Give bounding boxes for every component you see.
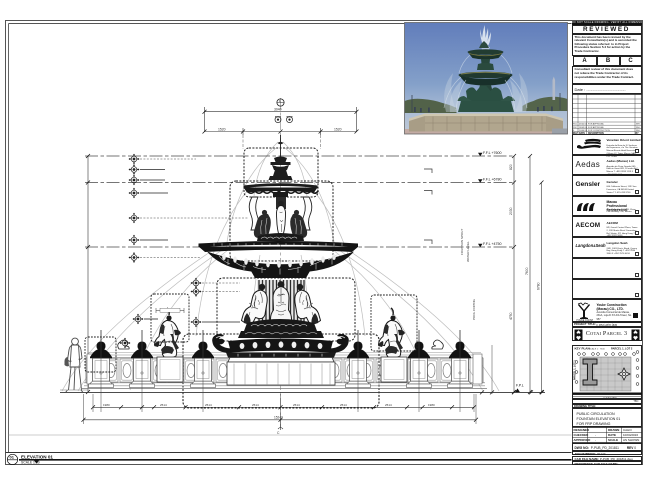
svg-text:PARCEL 1, LOT 1: PARCEL 1, LOT 1 bbox=[573, 360, 576, 380]
svg-text:1980: 1980 bbox=[103, 403, 110, 407]
svg-text:10/04/16: 10/04/16 bbox=[579, 130, 588, 132]
svg-text:WH: WH bbox=[636, 130, 640, 132]
svg-text:FOR APPROVAL: FOR APPROVAL bbox=[588, 122, 605, 125]
svg-text:DRAWN: DRAWN bbox=[608, 428, 619, 432]
svg-text:2514: 2514 bbox=[385, 403, 392, 407]
svg-text:ELEVATION 01: ELEVATION 01 bbox=[21, 454, 53, 459]
svg-text:KEY PLAN: KEY PLAN bbox=[574, 347, 589, 351]
svg-text:-: - bbox=[595, 433, 596, 437]
svg-text:-: - bbox=[595, 438, 596, 442]
svg-text:WATER LEVEL: WATER LEVEL bbox=[466, 241, 470, 262]
svg-text:FOUNTAIN SPOUT: FOUNTAIN SPOUT bbox=[460, 229, 464, 255]
svg-text:2030: 2030 bbox=[509, 207, 513, 215]
svg-text:F.F.L +7600: F.F.L +7600 bbox=[483, 151, 502, 155]
svg-text:2514: 2514 bbox=[252, 403, 259, 407]
svg-text:SCALE: SCALE bbox=[608, 438, 618, 442]
svg-text:APPROVED: APPROVED bbox=[573, 438, 591, 442]
svg-text:18/03/16: 18/03/16 bbox=[579, 126, 588, 128]
svg-text:C: C bbox=[277, 431, 280, 435]
svg-text:7600: 7600 bbox=[525, 267, 529, 275]
svg-text:1520: 1520 bbox=[334, 127, 342, 131]
svg-text:05/02/16: 05/02/16 bbox=[579, 123, 588, 125]
svg-text:DATE: DATE bbox=[608, 433, 616, 437]
svg-text:6780: 6780 bbox=[537, 282, 541, 290]
svg-text:10/04/2016: 10/04/2016 bbox=[623, 433, 638, 437]
svg-text:DESIGNED: DESIGNED bbox=[573, 428, 590, 432]
svg-text:WH: WH bbox=[636, 123, 640, 125]
svg-text:2514: 2514 bbox=[293, 403, 300, 407]
svg-text:CAHO: CAHO bbox=[623, 428, 632, 432]
svg-text:FOR APPROVAL: FOR APPROVAL bbox=[588, 125, 605, 128]
svg-text:2514: 2514 bbox=[205, 403, 212, 407]
svg-text:F.F.L +6780: F.F.L +6780 bbox=[483, 178, 502, 182]
svg-text:1980: 1980 bbox=[428, 403, 435, 407]
svg-text:YOUKE CONSTRUCTION: YOUKE CONSTRUCTION bbox=[576, 319, 593, 321]
svg-text:2514: 2514 bbox=[160, 403, 167, 407]
svg-text:4750: 4750 bbox=[509, 312, 513, 320]
svg-text:2514: 2514 bbox=[340, 403, 347, 407]
svg-text:F.P.L: F.P.L bbox=[516, 384, 524, 388]
svg-text:15240: 15240 bbox=[274, 416, 283, 420]
svg-text:3040: 3040 bbox=[274, 108, 282, 112]
svg-text:CHECKED: CHECKED bbox=[573, 433, 589, 437]
svg-text:POOL COPING: POOL COPING bbox=[472, 298, 476, 320]
svg-text:SCALE 1 : 7500: SCALE 1 : 7500 bbox=[589, 348, 605, 351]
svg-text:1520: 1520 bbox=[218, 127, 226, 131]
svg-text:AS SHOWN: AS SHOWN bbox=[623, 438, 639, 442]
svg-text:FOR CONSTRUCTION: FOR CONSTRUCTION bbox=[588, 130, 610, 132]
svg-text:01: 01 bbox=[10, 455, 15, 460]
svg-text:820: 820 bbox=[509, 164, 513, 170]
svg-text:WH: WH bbox=[636, 126, 640, 128]
svg-text:PARCEL 1, LOT 2: PARCEL 1, LOT 2 bbox=[611, 347, 633, 351]
svg-text:F.F.L +4750: F.F.L +4750 bbox=[483, 242, 502, 246]
